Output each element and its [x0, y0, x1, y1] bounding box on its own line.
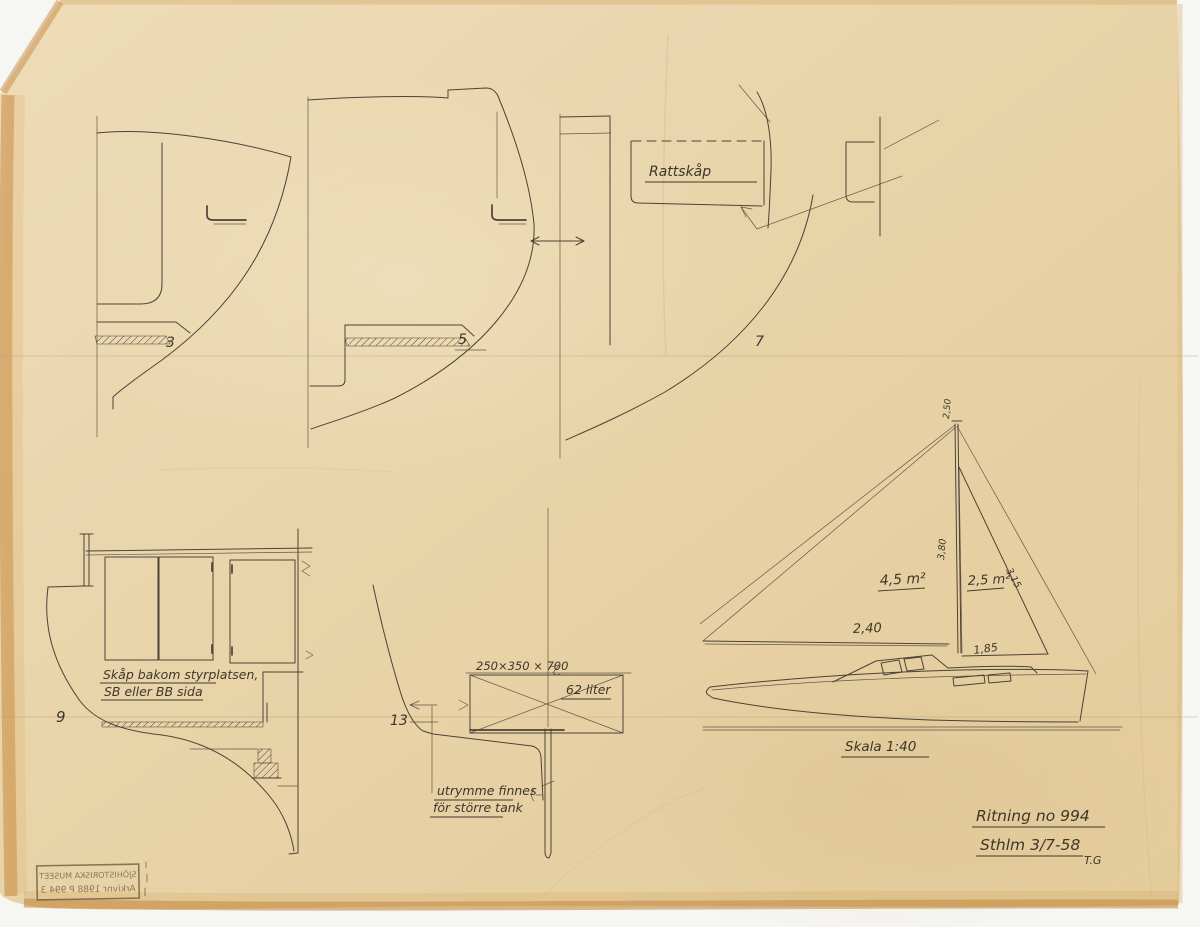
- topmast-label: 2,50: [942, 398, 954, 419]
- scanned-drawing: 3 5: [0, 0, 1200, 927]
- tank-note-line1: utrymme finnes: [437, 783, 537, 798]
- drawing-number-label: Ritning no 994: [976, 807, 1090, 825]
- aft-sail-area-label: 2,5 m²: [967, 572, 1010, 589]
- section-13-number: 13: [390, 713, 408, 729]
- cabinet-note-line2: SB eller BB sida: [104, 684, 203, 699]
- section-5-number: 5: [458, 332, 467, 348]
- drawing-canvas: 3 5: [0, 0, 1200, 927]
- section-3-number: 3: [166, 335, 175, 351]
- section-9-number: 9: [56, 708, 66, 726]
- stamp-museum-label: SJÖHISTORISKA MUSEET: [39, 869, 137, 881]
- initials-label: T.G: [1084, 854, 1101, 867]
- fore-boom-label: 2,40: [853, 621, 882, 637]
- rattskap-label: Rattskåp: [649, 163, 711, 180]
- tank-note-line2: för större tank: [433, 800, 524, 815]
- mast-height-label: 3,80: [936, 538, 949, 560]
- cabinet-note-line1: Skåp bakom styrplatsen,: [103, 667, 258, 682]
- place-date-label: Sthlm 3/7-58: [980, 836, 1080, 854]
- tank-dimension-label: 250×350 × 700: [476, 659, 568, 673]
- stamp-archive-number: Arkivnr 1988 P 994 3: [41, 884, 136, 896]
- main-sail-area-label: 4,5 m²: [879, 571, 926, 589]
- scale-label: Skala 1:40: [845, 739, 916, 755]
- section-7-number: 7: [755, 334, 764, 350]
- paper-sheet: [0, 0, 1183, 927]
- tank-volume-label: 62 liter: [566, 682, 611, 697]
